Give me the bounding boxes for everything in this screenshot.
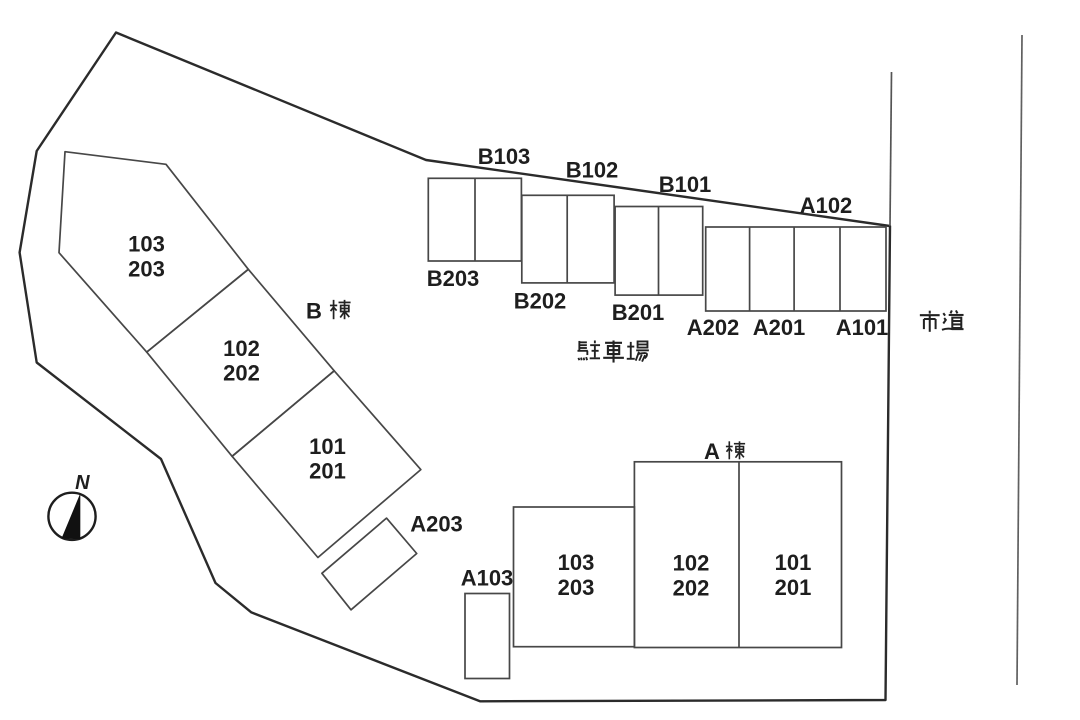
svg-text:203: 203 (128, 257, 165, 282)
svg-text:A203: A203 (410, 511, 463, 536)
svg-text:B202: B202 (514, 289, 567, 314)
svg-text:101: 101 (775, 550, 812, 575)
svg-text:A101: A101 (836, 315, 889, 340)
svg-text:202: 202 (223, 361, 260, 386)
svg-text:103: 103 (128, 232, 165, 257)
svg-text:A202: A202 (687, 315, 740, 340)
svg-text:B103: B103 (478, 144, 531, 169)
svg-text:A103: A103 (461, 566, 514, 591)
svg-text:B201: B201 (612, 300, 665, 325)
svg-text:201: 201 (775, 575, 812, 600)
svg-text:N: N (75, 472, 90, 494)
svg-text:B203: B203 (427, 266, 480, 291)
svg-text:103: 103 (558, 550, 595, 575)
svg-text:102: 102 (223, 336, 260, 361)
svg-text:B101: B101 (659, 172, 712, 197)
svg-text:B: B (306, 299, 322, 324)
svg-text:A201: A201 (753, 315, 806, 340)
svg-text:203: 203 (558, 575, 595, 600)
svg-text:102: 102 (673, 551, 710, 576)
svg-text:A: A (704, 439, 720, 464)
svg-text:202: 202 (673, 575, 710, 600)
svg-text:A102: A102 (800, 193, 853, 218)
svg-text:201: 201 (309, 459, 346, 484)
svg-text:101: 101 (309, 434, 346, 459)
svg-text:B102: B102 (566, 158, 619, 183)
